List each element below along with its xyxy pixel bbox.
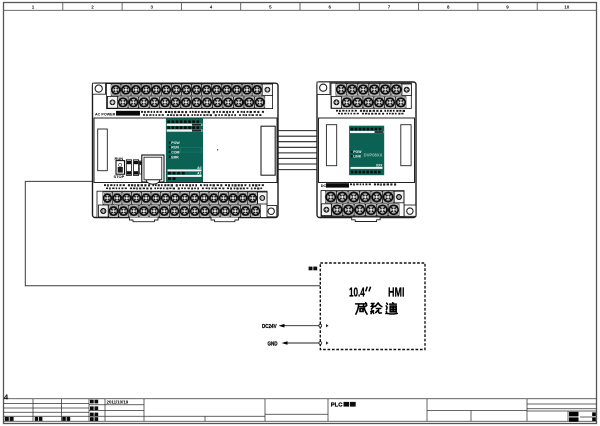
- svg-text:10: 10: [564, 4, 570, 9]
- svg-text:COM: COM: [171, 150, 179, 154]
- svg-text:GND: GND: [268, 342, 278, 348]
- svg-text:DVP08XX: DVP08XX: [364, 152, 383, 157]
- svg-text:LINK: LINK: [353, 155, 361, 159]
- svg-text:POW: POW: [171, 141, 180, 145]
- svg-text:10.4: 10.4: [349, 285, 365, 300]
- svg-text:HMI: HMI: [388, 285, 405, 300]
- svg-text:DC: DC: [321, 184, 327, 188]
- svg-text:RUN: RUN: [171, 146, 179, 150]
- svg-text:PLC: PLC: [331, 403, 343, 409]
- svg-text:STOP: STOP: [114, 174, 125, 179]
- svg-text:2011/10/19: 2011/10/19: [107, 399, 129, 404]
- svg-text:AC POWER: AC POWER: [95, 111, 115, 116]
- svg-text:DC24V: DC24V: [262, 324, 277, 330]
- svg-text:ERR: ERR: [171, 155, 179, 159]
